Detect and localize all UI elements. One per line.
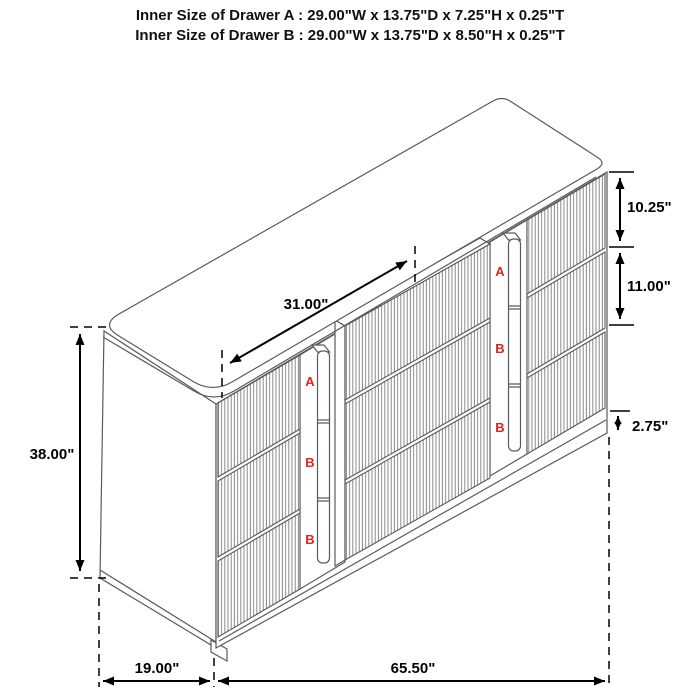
cabinet: A B B A B B bbox=[100, 99, 607, 662]
dimension-base-height: 2.75" bbox=[610, 411, 668, 435]
dimension-value: 2.75" bbox=[632, 418, 668, 435]
drawer-inner-size-header: Inner Size of Drawer A : 29.00"W x 13.75… bbox=[0, 6, 700, 46]
handle-bar bbox=[318, 351, 330, 563]
dimension-value: 31.00" bbox=[284, 296, 329, 313]
drawer-stack-right bbox=[527, 174, 605, 454]
dresser-dimension-drawing: A B B A B B 31.00" 38.00" bbox=[0, 0, 700, 700]
right-stack-drawer-b2-label: B bbox=[495, 420, 504, 435]
dimension-value: 11.00" bbox=[627, 278, 671, 295]
middle-stack-drawer-a-label: A bbox=[305, 374, 315, 389]
dimension-value: 19.00" bbox=[135, 660, 180, 677]
dimension-drawer-heights: 10.25" 11.00" bbox=[609, 172, 672, 325]
drawer-b-inner-size-text: Inner Size of Drawer B : 29.00"W x 13.75… bbox=[0, 26, 700, 46]
dimension-overall-height: 38.00" bbox=[30, 327, 112, 578]
right-stack-drawer-a-label: A bbox=[495, 264, 505, 279]
dimension-value: 38.00" bbox=[30, 446, 75, 463]
drawer-stack-left bbox=[218, 355, 300, 637]
drawer-a-inner-size-text: Inner Size of Drawer A : 29.00"W x 13.75… bbox=[0, 6, 700, 26]
dimension-value: 65.50" bbox=[391, 660, 436, 677]
middle-stack-drawer-b2-label: B bbox=[305, 532, 314, 547]
furniture-dimension-diagram-page: Inner Size of Drawer A : 29.00"W x 13.75… bbox=[0, 0, 700, 700]
dimension-value: 10.25" bbox=[627, 199, 672, 216]
middle-stack-side-sliver bbox=[335, 320, 345, 566]
handle-bar bbox=[509, 239, 521, 451]
right-stack-drawer-b1-label: B bbox=[495, 341, 504, 356]
middle-stack-drawer-b1-label: B bbox=[305, 455, 314, 470]
